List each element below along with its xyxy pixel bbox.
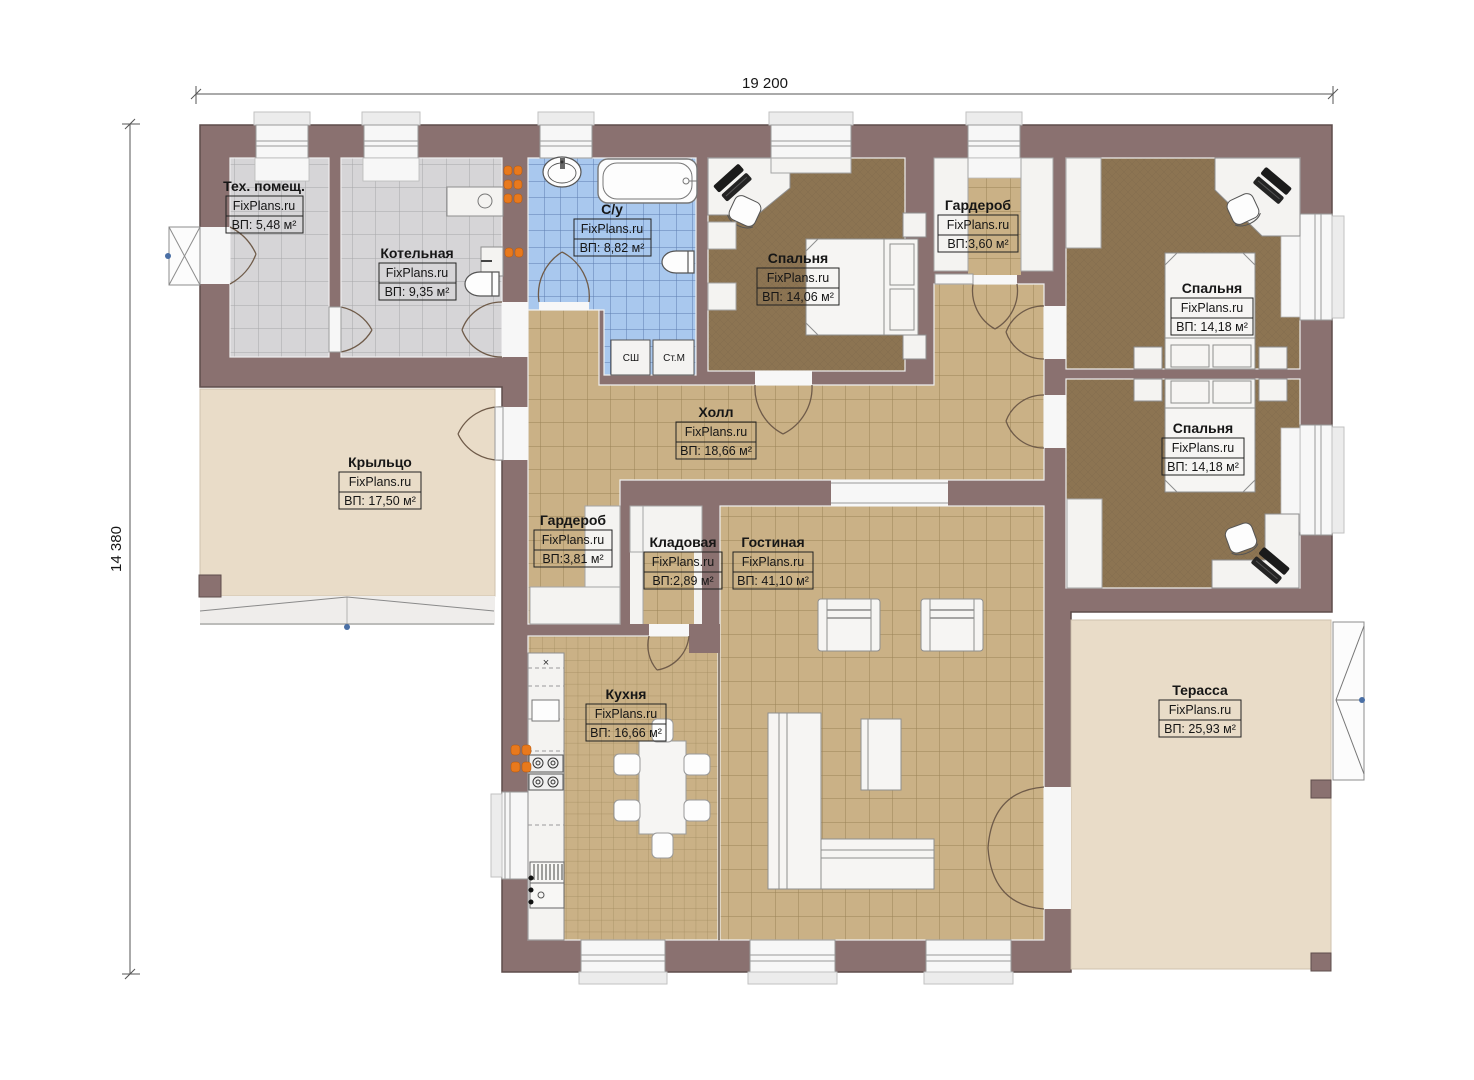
- svg-text:FixPlans.ru: FixPlans.ru: [1169, 703, 1232, 717]
- svg-text:Тех. помещ.: Тех. помещ.: [223, 178, 305, 194]
- svg-text:Холл: Холл: [698, 404, 733, 420]
- svg-text:FixPlans.ru: FixPlans.ru: [767, 271, 830, 285]
- svg-text:FixPlans.ru: FixPlans.ru: [1181, 301, 1244, 315]
- svg-text:FixPlans.ru: FixPlans.ru: [386, 266, 449, 280]
- svg-text:Гардероб: Гардероб: [945, 197, 1012, 213]
- svg-text:СШ: СШ: [623, 353, 639, 364]
- svg-text:FixPlans.ru: FixPlans.ru: [233, 199, 296, 213]
- svg-text:С/у: С/у: [601, 201, 623, 217]
- svg-text:Спальня: Спальня: [768, 250, 828, 266]
- svg-text:ВП: 17,50 м²: ВП: 17,50 м²: [344, 494, 416, 508]
- svg-text:FixPlans.ru: FixPlans.ru: [542, 533, 605, 547]
- svg-text:ВП: 8,82 м²: ВП: 8,82 м²: [580, 241, 645, 255]
- svg-text:ВП:2,89 м²: ВП:2,89 м²: [652, 574, 713, 588]
- svg-text:Котельная: Котельная: [380, 245, 453, 261]
- svg-text:ВП: 41,10 м²: ВП: 41,10 м²: [737, 574, 809, 588]
- svg-text:ВП:3,81 м²: ВП:3,81 м²: [542, 552, 603, 566]
- svg-text:Крыльцо: Крыльцо: [348, 454, 412, 470]
- svg-text:14 380: 14 380: [108, 526, 125, 572]
- svg-text:ВП: 16,66 м²: ВП: 16,66 м²: [590, 726, 662, 740]
- svg-text:ВП: 25,93 м²: ВП: 25,93 м²: [1164, 722, 1236, 736]
- svg-text:Ст.М: Ст.М: [663, 353, 685, 364]
- svg-text:×: ×: [543, 657, 549, 669]
- svg-text:19 200: 19 200: [742, 75, 788, 92]
- svg-text:FixPlans.ru: FixPlans.ru: [742, 555, 805, 569]
- svg-text:FixPlans.ru: FixPlans.ru: [947, 218, 1010, 232]
- svg-text:FixPlans.ru: FixPlans.ru: [1172, 441, 1235, 455]
- svg-text:ВП: 14,18 м²: ВП: 14,18 м²: [1176, 320, 1248, 334]
- svg-text:Кухня: Кухня: [606, 686, 647, 702]
- svg-text:ВП: 5,48 м²: ВП: 5,48 м²: [232, 218, 297, 232]
- svg-text:ВП: 14,18 м²: ВП: 14,18 м²: [1167, 460, 1239, 474]
- svg-text:ВП: 14,06 м²: ВП: 14,06 м²: [762, 290, 834, 304]
- svg-text:FixPlans.ru: FixPlans.ru: [685, 425, 748, 439]
- svg-text:ВП: 9,35 м²: ВП: 9,35 м²: [385, 285, 450, 299]
- svg-text:FixPlans.ru: FixPlans.ru: [581, 222, 644, 236]
- svg-text:ВП:3,60 м²: ВП:3,60 м²: [947, 237, 1008, 251]
- svg-text:FixPlans.ru: FixPlans.ru: [652, 555, 715, 569]
- svg-text:Спальня: Спальня: [1173, 420, 1233, 436]
- svg-text:Спальня: Спальня: [1182, 280, 1242, 296]
- svg-text:FixPlans.ru: FixPlans.ru: [595, 707, 658, 721]
- svg-text:Кладовая: Кладовая: [649, 534, 716, 550]
- svg-text:Гостиная: Гостиная: [741, 534, 804, 550]
- svg-text:Гардероб: Гардероб: [540, 512, 607, 528]
- svg-text:FixPlans.ru: FixPlans.ru: [349, 475, 412, 489]
- svg-text:Терасса: Терасса: [1172, 682, 1228, 698]
- svg-text:ВП: 18,66 м²: ВП: 18,66 м²: [680, 444, 752, 458]
